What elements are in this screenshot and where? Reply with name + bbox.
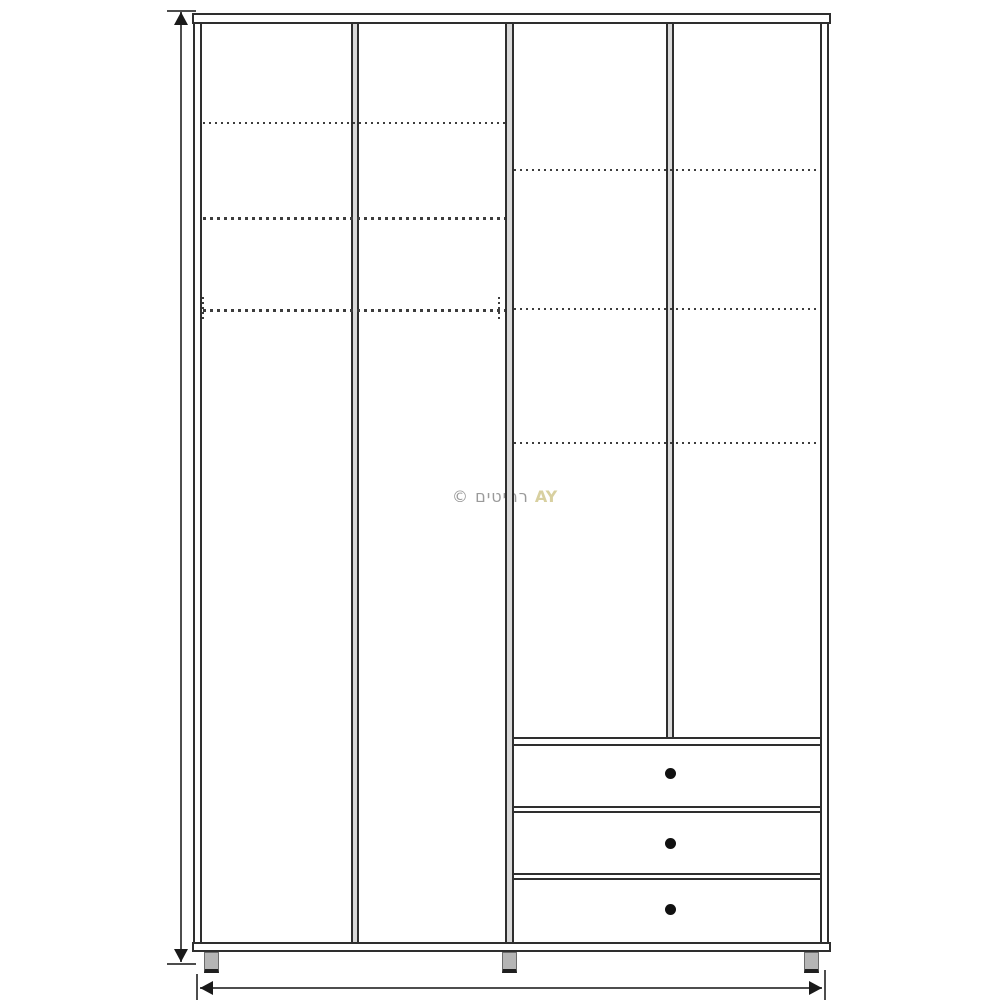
foot-left — [204, 952, 219, 973]
height-dimension-arrow-up-icon — [174, 12, 188, 25]
shelf-line-right-1 — [514, 169, 819, 171]
shelf-line-left-3 — [203, 309, 505, 312]
drawer-knob-2 — [665, 838, 676, 849]
wardrobe-diagram: © רהיטים AY — [0, 0, 1000, 1000]
divider-right — [666, 24, 674, 737]
drawer-knob-3 — [665, 904, 676, 915]
shelf-line-left-2 — [203, 217, 505, 220]
drawer-separator-2 — [514, 873, 820, 880]
width-dimension-arrow-left-icon — [200, 981, 213, 995]
shelf-line-right-2 — [514, 308, 819, 310]
drawer-separator-1 — [514, 806, 820, 813]
divider-left — [351, 24, 359, 943]
width-dimension-line — [200, 987, 822, 989]
left-side-panel — [193, 24, 202, 943]
width-dimension-right-extension — [824, 970, 826, 1000]
right-side-panel — [820, 24, 829, 943]
foot-right — [804, 952, 819, 973]
drawer-knob-1 — [665, 768, 676, 779]
top-panel — [192, 13, 831, 24]
height-dimension-bottom-tick — [167, 963, 196, 965]
width-dimension-left-extension — [196, 974, 198, 1000]
watermark-latin: AY — [535, 487, 557, 506]
shelf-line-left-1 — [203, 122, 505, 124]
shelf-pin-tick-right — [498, 297, 500, 321]
height-dimension-line — [180, 12, 182, 962]
shelf-pin-tick-left — [202, 297, 204, 321]
drawer-top-rail — [514, 737, 820, 746]
height-dimension-arrow-down-icon — [174, 949, 188, 962]
width-dimension-arrow-right-icon — [809, 981, 822, 995]
bottom-panel — [192, 942, 831, 952]
divider-center — [505, 24, 514, 943]
foot-center — [502, 952, 517, 973]
shelf-line-right-3 — [514, 442, 819, 444]
watermark-copyright-and-hebrew: © רהיטים — [452, 487, 529, 506]
